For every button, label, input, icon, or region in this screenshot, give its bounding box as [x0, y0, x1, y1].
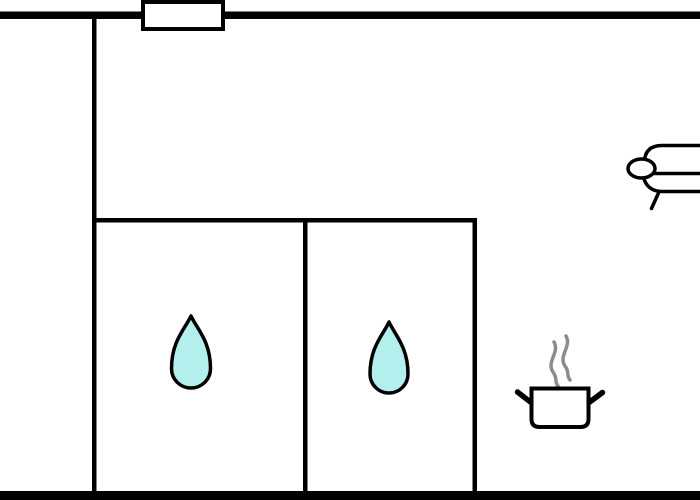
exterior-wall-bottom: [0, 491, 700, 500]
interior-wall-middle-horizontal: [92, 218, 477, 223]
exterior-wall-top: [0, 12, 700, 20]
interior-wall-center-vertical: [303, 218, 308, 491]
pot-body: [532, 389, 589, 428]
floor-plan: [0, 0, 700, 500]
interior-wall-left-vertical: [92, 12, 97, 491]
interior-wall-right-vertical: [473, 218, 478, 491]
bed-pillow: [628, 159, 655, 178]
floor-plan-canvas: [0, 0, 700, 500]
floor-background: [0, 0, 700, 500]
window-marker-icon: [143, 2, 223, 29]
